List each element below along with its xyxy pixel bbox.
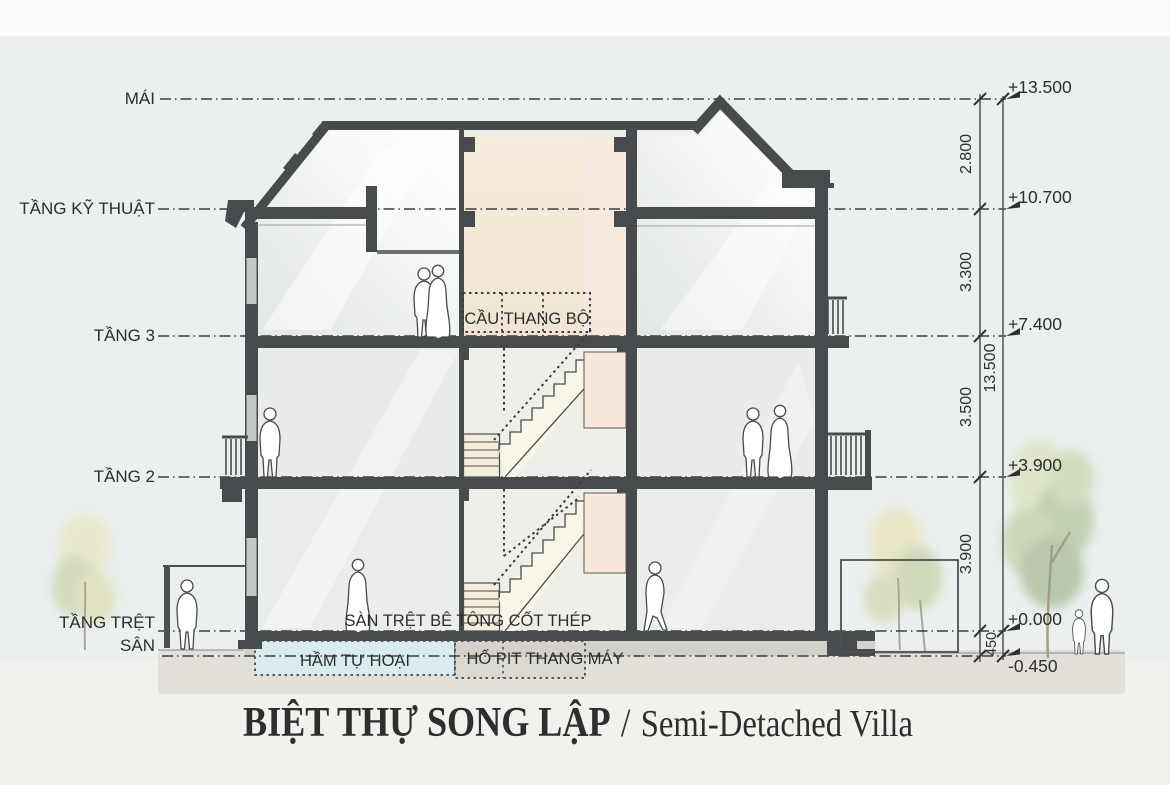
title-english: Semi-Detached Villa (641, 702, 914, 745)
dim-segment-1: 3.300 (958, 252, 975, 292)
elevation-san: -0.450 (1008, 656, 1058, 676)
right-eave (782, 170, 830, 185)
level-label-san: SÂN (120, 636, 155, 655)
tech-floor-slab-right (637, 207, 827, 219)
ground-slab (245, 631, 875, 641)
flat-roof (322, 121, 701, 130)
tech-window-mullion (366, 186, 377, 252)
shaft-left-wall (459, 130, 464, 631)
level-label-t3: TẦNG 3 (94, 326, 155, 345)
elevator-cab-upper (584, 352, 626, 428)
elevator-pit-label: HỐ PIT THANG MÁY (466, 648, 623, 668)
elevation-t3: +7.400 (1008, 314, 1062, 334)
tech-floor-slab-left (245, 207, 377, 219)
level-label-tkt: TẦNG KỸ THUẬT (19, 199, 155, 218)
section-drawing: CẦU THANG BỘ 2.800 3.300 3.500 3.900 13.… (0, 0, 1170, 785)
title-vietnamese: BIỆT THỰ SONG LẬP (243, 698, 611, 745)
title-divider: / (621, 702, 631, 746)
dim-segment-3: 3.900 (958, 534, 975, 574)
sheet-title: BIỆT THỰ SONG LẬP / Semi-Detached Villa (243, 698, 913, 745)
svg-text:BIỆT THỰ SONG LẬP /: BIỆT THỰ SONG LẬP / Semi-Detached Villa (243, 698, 913, 745)
floor-slab-tang-3 (245, 336, 827, 348)
elevator-cab-lower (584, 493, 626, 573)
level-label-t2: TẦNG 2 (94, 467, 155, 486)
exterior-steps (827, 641, 857, 649)
elevation-mai: +13.500 (1008, 77, 1072, 97)
dim-segment-0: 2.800 (958, 134, 975, 174)
septic-tank-label: HẦM TỰ HOẠI (300, 651, 410, 670)
dim-segment-2: 3.500 (958, 387, 975, 427)
level-label-mai: MÁI (125, 89, 155, 108)
elevation-tkt: +10.700 (1008, 187, 1072, 207)
ground-slab-label: SÀN TRỆT BÊ TÔNG CỐT THÉP (345, 610, 592, 630)
dim-total: 13.500 (982, 343, 999, 392)
right-wall (815, 186, 828, 640)
dim-plinth: 450 (984, 632, 1000, 656)
level-label-tret: TẦNG TRỆT (59, 613, 155, 632)
elevation-tret: +0.000 (1008, 609, 1062, 629)
staircase-label: CẦU THANG BỘ (464, 309, 589, 328)
floor-slab-tang-2 (245, 477, 827, 489)
elevation-t2: +3.900 (1008, 455, 1062, 475)
shaft-right-wall (626, 130, 637, 631)
villa-section-sheet: CẦU THANG BỘ 2.800 3.300 3.500 3.900 13.… (0, 0, 1170, 785)
